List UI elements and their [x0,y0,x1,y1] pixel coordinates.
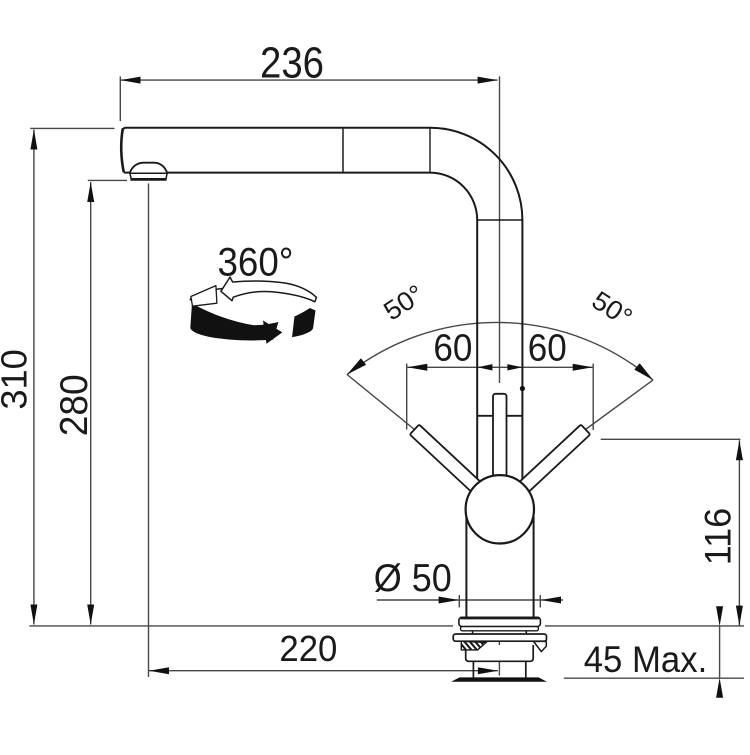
svg-text:Ø 50: Ø 50 [374,557,452,600]
svg-text:45 Max.: 45 Max. [584,639,708,680]
svg-text:60: 60 [528,327,567,369]
svg-text:220: 220 [279,628,337,669]
svg-text:236: 236 [260,39,324,88]
svg-text:360°: 360° [218,241,294,285]
svg-text:310: 310 [0,349,35,410]
svg-text:280: 280 [53,374,96,436]
svg-text:60: 60 [433,327,472,369]
svg-text:116: 116 [697,508,739,566]
